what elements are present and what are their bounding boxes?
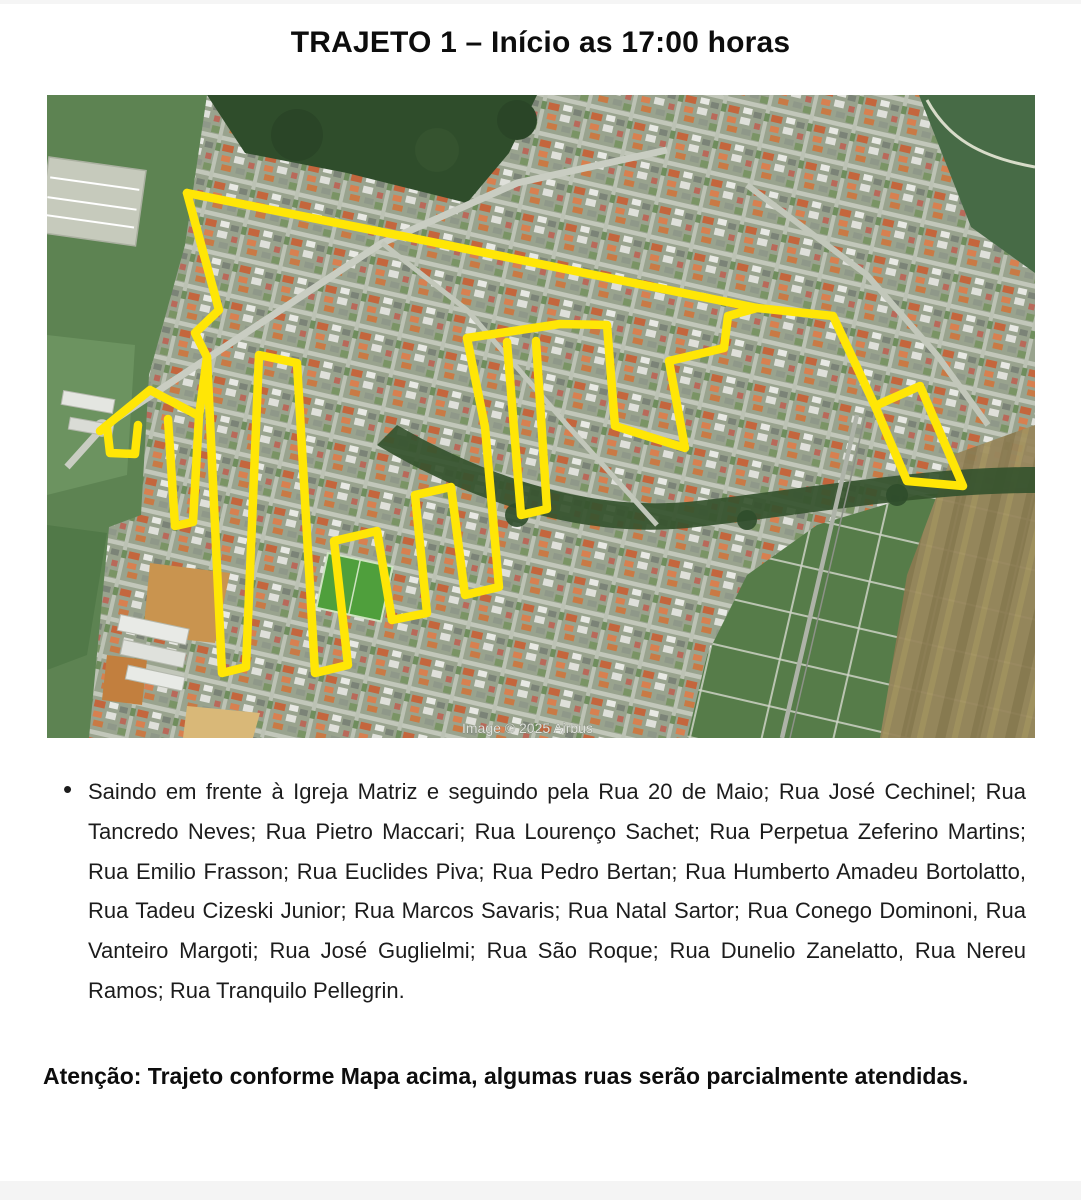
document-page: TRAJETO 1 – Início as 17:00 horas <box>0 0 1081 1200</box>
satellite-map-image: Image © 2025 Airbus <box>47 95 1035 738</box>
satellite-map: Image © 2025 Airbus <box>47 95 1035 738</box>
page-title: TRAJETO 1 – Início as 17:00 horas <box>0 26 1081 60</box>
map-attribution: Image © 2025 Airbus <box>462 720 593 736</box>
attention-note: Atenção: Trajeto conforme Mapa acima, al… <box>43 1063 1043 1090</box>
page-edge-bottom <box>0 1181 1081 1200</box>
bullet-marker: • <box>63 770 72 810</box>
page-edge-top <box>0 0 1081 4</box>
route-description: Saindo em frente à Igreja Matriz e segui… <box>88 772 1026 1011</box>
